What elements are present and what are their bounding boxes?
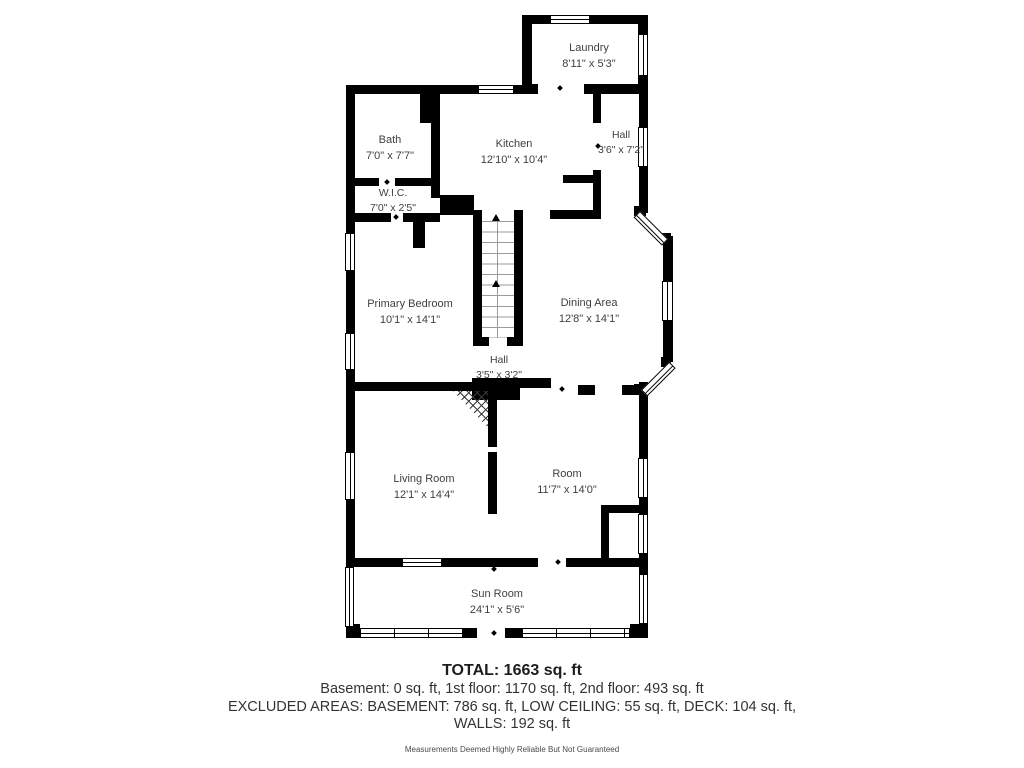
wall bbox=[505, 628, 522, 638]
room-dims: 3'5" x 3'2" bbox=[459, 368, 539, 383]
excluded-areas-text: EXCLUDED AREAS: BASEMENT: 786 sq. ft, LO… bbox=[0, 699, 1024, 717]
room-dims: 3'6" x 7'2" bbox=[581, 143, 661, 158]
window bbox=[639, 574, 648, 624]
room-name: Hall bbox=[459, 353, 539, 368]
room-dims: 12'1" x 14'4" bbox=[344, 487, 504, 503]
floor-areas-text: Basement: 0 sq. ft, 1st floor: 1170 sq. … bbox=[0, 681, 1024, 699]
room-label-dining-area: Dining Area 12'8" x 14'1" bbox=[519, 295, 659, 327]
total-area-text: TOTAL: 1663 sq. ft bbox=[0, 661, 1024, 681]
room-label-hall-top: Hall 3'6" x 7'2" bbox=[581, 128, 661, 158]
room-name: Sun Room bbox=[417, 586, 577, 602]
wall bbox=[550, 210, 601, 219]
wall bbox=[440, 558, 538, 567]
room-name: W.I.C. bbox=[333, 186, 453, 201]
room-label-wic: W.I.C. 7'0" x 2'5" bbox=[333, 186, 453, 216]
room-name: Dining Area bbox=[519, 295, 659, 311]
window bbox=[360, 628, 463, 638]
door-marker bbox=[491, 566, 497, 572]
window bbox=[638, 514, 648, 554]
door-marker bbox=[557, 85, 563, 91]
door-marker bbox=[559, 386, 565, 392]
room-dims: 8'11" x 5'3" bbox=[529, 56, 649, 72]
wall bbox=[566, 558, 648, 567]
room-dims: 12'8" x 14'1" bbox=[519, 311, 659, 327]
wall bbox=[507, 337, 523, 346]
room-label-hall-mid: Hall 3'5" x 3'2" bbox=[459, 353, 539, 383]
room-name: Living Room bbox=[344, 471, 504, 487]
walls-area-text: WALLS: 192 sq. ft bbox=[0, 716, 1024, 734]
room-label-living-room: Living Room 12'1" x 14'4" bbox=[344, 471, 504, 503]
room-label-bath: Bath 7'0" x 7'7" bbox=[330, 132, 450, 164]
room-name: Laundry bbox=[529, 40, 649, 56]
room-label-room: Room 11'7" x 14'0" bbox=[507, 466, 627, 498]
wall bbox=[639, 558, 648, 574]
up-arrow-icon bbox=[492, 214, 500, 221]
room-name: Bath bbox=[330, 132, 450, 148]
wall bbox=[346, 85, 480, 94]
up-arrow-icon bbox=[492, 280, 500, 287]
room-label-sun-room: Sun Room 24'1" x 5'6" bbox=[417, 586, 577, 618]
window bbox=[345, 233, 355, 271]
wall bbox=[413, 222, 425, 248]
room-label-laundry: Laundry 8'11" x 5'3" bbox=[529, 40, 649, 72]
room-name: Primary Bedroom bbox=[330, 296, 490, 312]
window bbox=[522, 628, 630, 638]
door-marker bbox=[491, 630, 497, 636]
wall bbox=[601, 505, 648, 513]
wall bbox=[512, 85, 528, 94]
wall bbox=[593, 85, 601, 123]
room-dims: 24'1" x 5'6" bbox=[417, 602, 577, 618]
window bbox=[641, 362, 676, 397]
room-label-kitchen: Kitchen 12'10" x 10'4" bbox=[454, 136, 574, 168]
window bbox=[662, 281, 673, 321]
window bbox=[345, 333, 355, 370]
window bbox=[634, 211, 669, 246]
window bbox=[550, 15, 590, 24]
wall bbox=[346, 178, 379, 186]
door-marker bbox=[384, 179, 390, 185]
wall bbox=[578, 385, 595, 395]
room-dims: 7'0" x 2'5" bbox=[333, 201, 453, 216]
disclaimer-text: Measurements Deemed Highly Reliable But … bbox=[0, 745, 1024, 755]
room-dims: 12'10" x 10'4" bbox=[454, 152, 574, 168]
wall bbox=[488, 390, 497, 447]
window bbox=[345, 567, 354, 627]
room-name: Hall bbox=[581, 128, 661, 143]
wall bbox=[395, 178, 440, 186]
wall bbox=[563, 175, 601, 183]
floor-plan: Laundry 8'11" x 5'3" Bath 7'0" x 7'7" Ki… bbox=[0, 0, 1024, 660]
door-marker bbox=[555, 559, 561, 565]
room-name: Kitchen bbox=[454, 136, 574, 152]
room-dims: 10'1" x 14'1" bbox=[330, 312, 490, 328]
wall bbox=[639, 624, 648, 638]
room-label-primary-bedroom: Primary Bedroom 10'1" x 14'1" bbox=[330, 296, 490, 328]
area-summary: TOTAL: 1663 sq. ft Basement: 0 sq. ft, 1… bbox=[0, 661, 1024, 755]
wall bbox=[601, 513, 609, 560]
wall bbox=[346, 382, 473, 391]
window bbox=[402, 558, 442, 567]
window bbox=[638, 458, 648, 498]
wall bbox=[473, 337, 489, 346]
wall bbox=[346, 558, 404, 567]
wall bbox=[463, 628, 477, 638]
room-dims: 11'7" x 14'0" bbox=[507, 482, 627, 498]
window bbox=[478, 85, 514, 94]
room-name: Room bbox=[507, 466, 627, 482]
room-dims: 7'0" x 7'7" bbox=[330, 148, 450, 164]
